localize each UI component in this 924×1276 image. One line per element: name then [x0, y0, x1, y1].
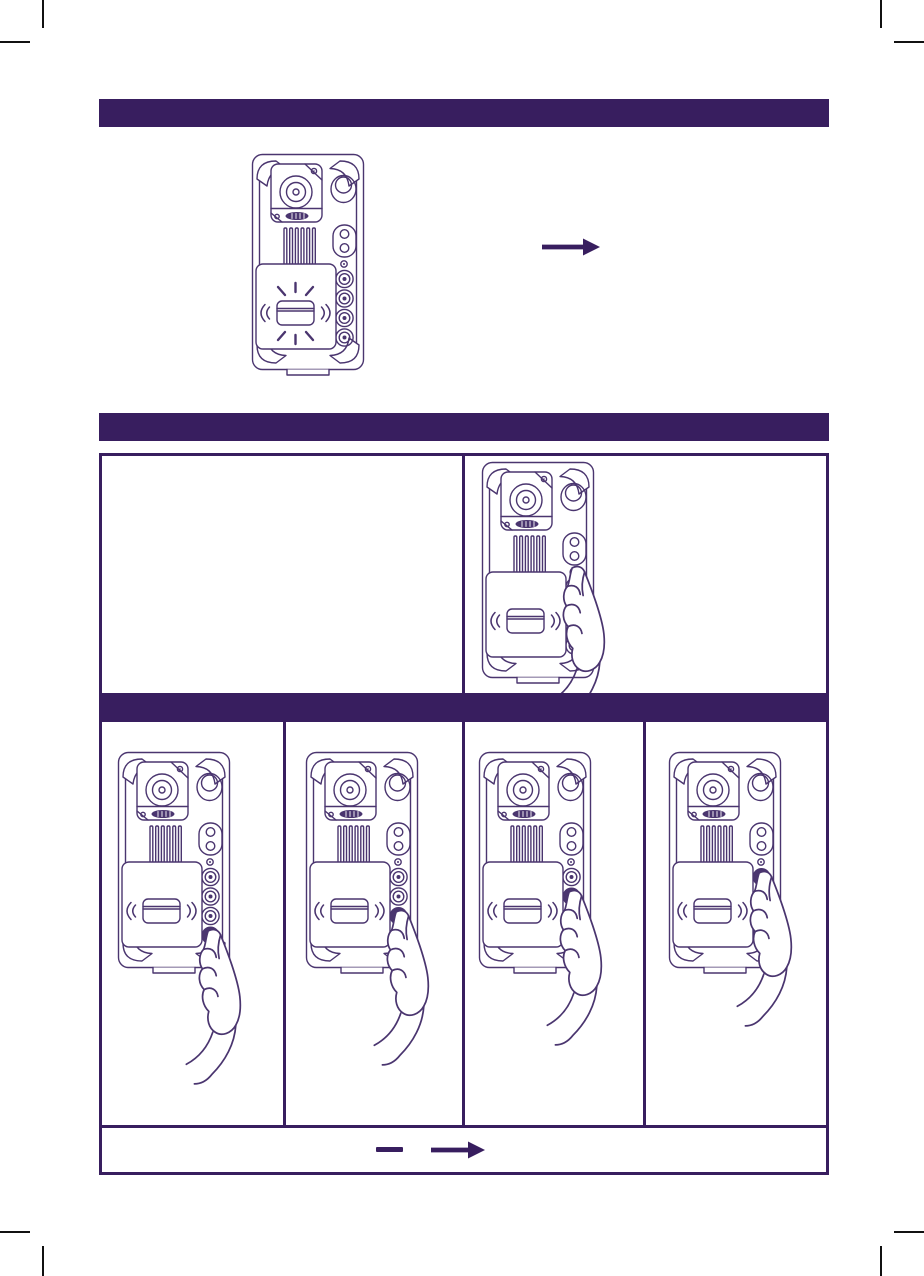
indicator-leds-icon — [560, 823, 583, 855]
table-cell-program-step — [465, 456, 826, 693]
crop-mark — [880, 0, 882, 28]
table-cell-empty — [102, 456, 462, 693]
arrow-right-icon — [431, 1139, 485, 1161]
table-divider — [99, 1125, 829, 1128]
crop-mark — [42, 0, 44, 28]
crop-mark — [0, 1231, 30, 1233]
indicator-leds-icon — [199, 823, 222, 855]
arrow-right-icon — [431, 1139, 485, 1161]
section-header-bar-top — [99, 99, 829, 127]
intercom-figure-flashing — [250, 152, 366, 378]
crop-mark — [0, 41, 30, 43]
crop-mark — [894, 1231, 924, 1233]
video-intercom-device-icon — [250, 152, 366, 378]
camera-icon — [498, 762, 549, 820]
arrow-right-icon — [542, 236, 600, 258]
step-cell-3 — [465, 722, 643, 1125]
camera-icon — [501, 472, 552, 530]
pointing-hand-icon — [537, 885, 641, 1058]
step-cell-1 — [102, 722, 283, 1125]
section-header-bar-inner — [99, 693, 829, 722]
arrow-right-icon — [542, 236, 600, 258]
indicator-leds-icon — [333, 225, 356, 257]
instruction-table — [99, 453, 829, 1175]
pointing-hand-icon — [176, 924, 280, 1097]
pointing-hand-icon — [727, 866, 824, 1039]
device-bottom-tab — [287, 370, 329, 376]
indicator-leds-icon — [387, 823, 410, 855]
camera-icon — [271, 164, 322, 222]
indicator-leds-icon — [750, 823, 773, 855]
crop-mark — [894, 41, 924, 43]
crop-mark — [880, 1246, 882, 1276]
manual-page — [0, 0, 924, 1276]
crop-mark — [42, 1246, 44, 1276]
pointing-hand-icon — [540, 561, 644, 694]
step-cell-4 — [646, 722, 823, 1125]
card-reader-icon — [256, 264, 336, 349]
step-cell-2 — [286, 722, 462, 1125]
minus-icon — [376, 1147, 403, 1152]
pointing-hand-icon — [364, 905, 463, 1078]
camera-icon — [137, 762, 188, 820]
camera-icon — [688, 762, 739, 820]
camera-icon — [325, 762, 376, 820]
section-header-bar-middle — [99, 413, 829, 441]
